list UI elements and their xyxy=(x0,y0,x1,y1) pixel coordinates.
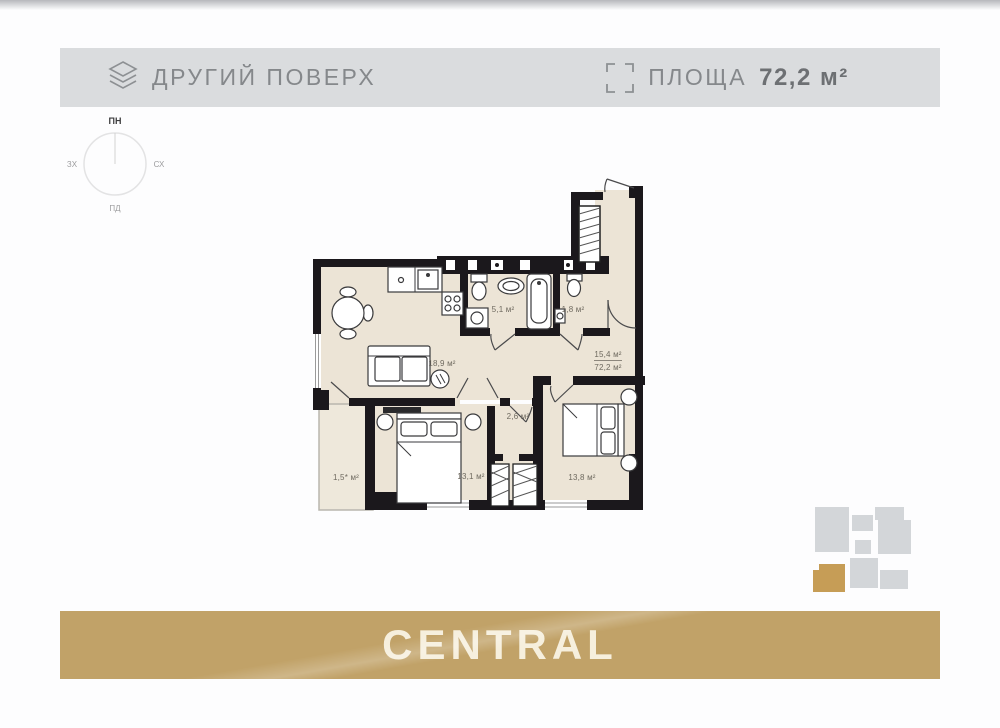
compass-south-label: ПД xyxy=(109,204,121,213)
brand-banner: CENTRAL xyxy=(60,611,940,679)
wc-area-label: 1,8 м² xyxy=(562,305,585,314)
bedroom1-area-label: 13,1 м² xyxy=(457,472,484,481)
compass-north-label: ПН xyxy=(109,116,122,126)
wardrobes xyxy=(491,464,537,506)
compass: ПН СХ ПД ЗХ xyxy=(62,106,172,218)
balcony-area xyxy=(319,404,373,510)
balcony-area-label: 1,5* м² xyxy=(333,473,359,482)
kitchen-counter xyxy=(388,267,442,292)
bedroom2-area-label: 13,8 м² xyxy=(568,473,595,482)
compass-east-label: СХ xyxy=(154,160,165,169)
clock-icon xyxy=(431,370,449,388)
area-value: 72,2 м² xyxy=(759,64,849,92)
stairs xyxy=(579,206,600,262)
compass-west-label: ЗХ xyxy=(67,160,78,169)
floor-title: ДРУГИЙ ПОВЕРХ xyxy=(152,64,376,91)
highlighted-unit xyxy=(813,564,845,592)
page-top-shadow xyxy=(0,0,1000,10)
layers-icon xyxy=(108,61,138,95)
area-label: ПЛОЩА xyxy=(648,64,747,91)
area-frame-icon xyxy=(606,63,634,93)
floor-title-group: ДРУГИЙ ПОВЕРХ xyxy=(108,61,376,95)
brand-name: CENTRAL xyxy=(382,621,618,669)
sofa xyxy=(368,346,430,386)
building-overview-plan xyxy=(808,498,920,598)
header-bar: ДРУГИЙ ПОВЕРХ ПЛОЩА 72,2 м² xyxy=(60,48,940,107)
closet-area-label: 2,6 м² xyxy=(507,412,530,421)
bathroom-area-label: 5,1 м² xyxy=(492,305,515,314)
tv-console xyxy=(383,407,421,413)
total-area-label: 72,2 м² xyxy=(594,363,621,372)
area-group: ПЛОЩА 72,2 м² xyxy=(606,63,849,93)
floor-plan: 18,9 м² 5,1 м² 1,8 м² 15,4 м² 72,2 м² 2,… xyxy=(305,176,665,531)
hall-area-label: 15,4 м² xyxy=(594,350,621,359)
stove xyxy=(442,292,463,315)
living-area-label: 18,9 м² xyxy=(428,359,455,368)
